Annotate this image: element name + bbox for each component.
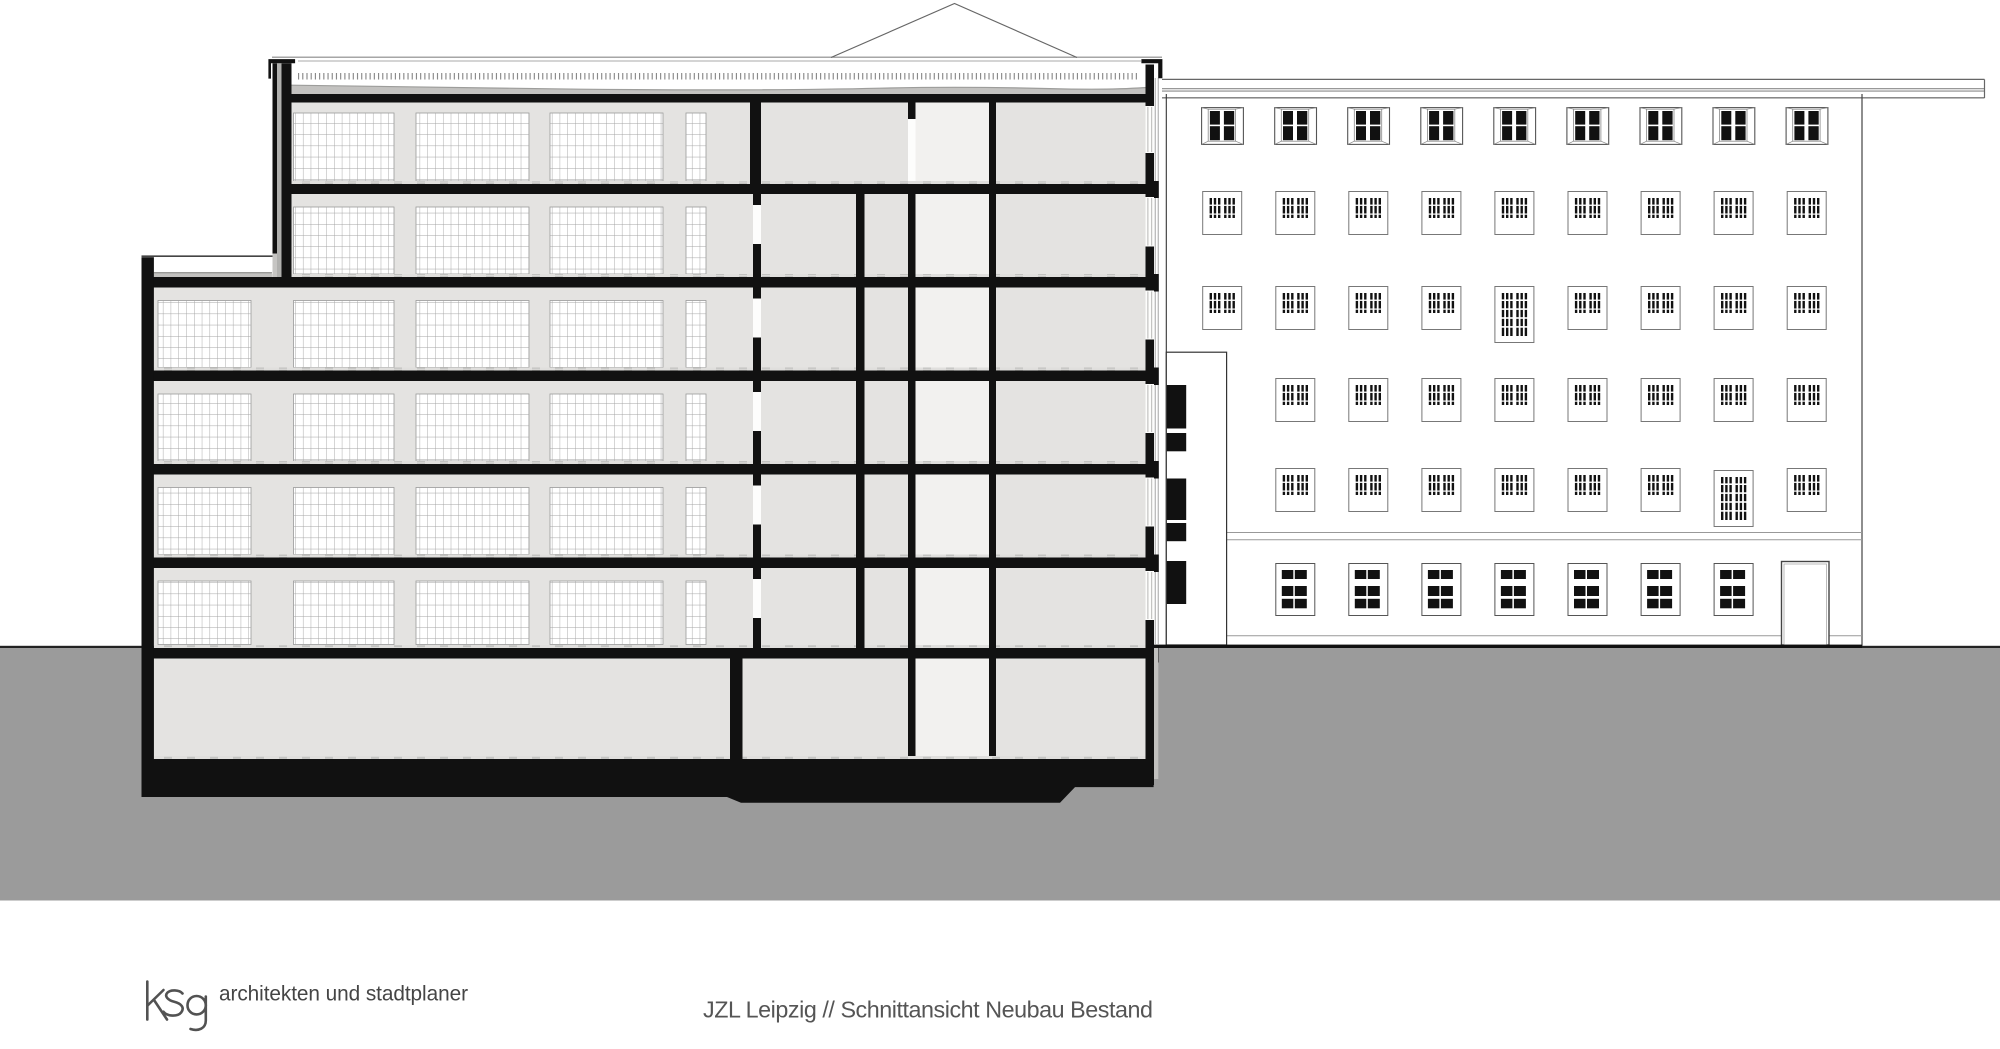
svg-text:architekten und stadtplaner: architekten und stadtplaner [219,983,468,1006]
svg-text:JZL Leipzig // Schnittansicht: JZL Leipzig // Schnittansicht Neubau Bes… [703,997,1153,1023]
